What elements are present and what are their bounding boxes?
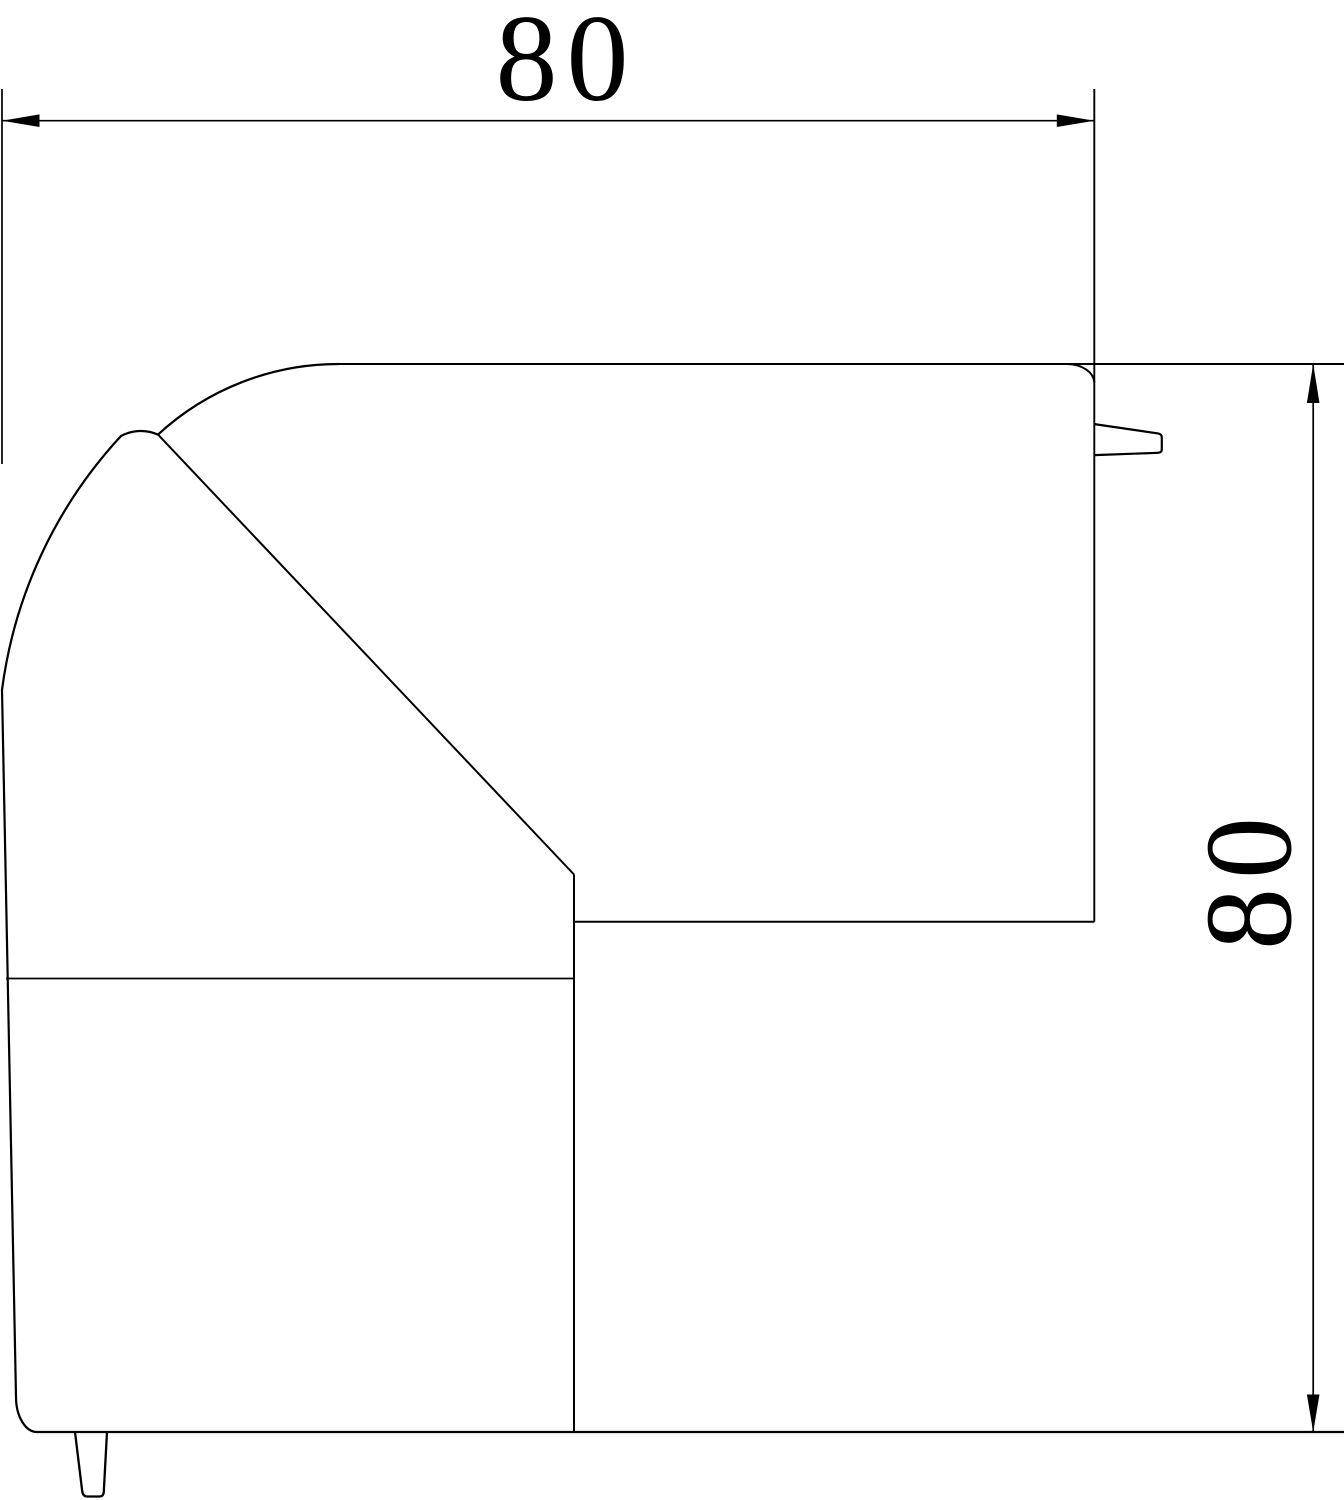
svg-text:80: 80 [496, 0, 638, 127]
svg-text:80: 80 [1181, 808, 1318, 950]
